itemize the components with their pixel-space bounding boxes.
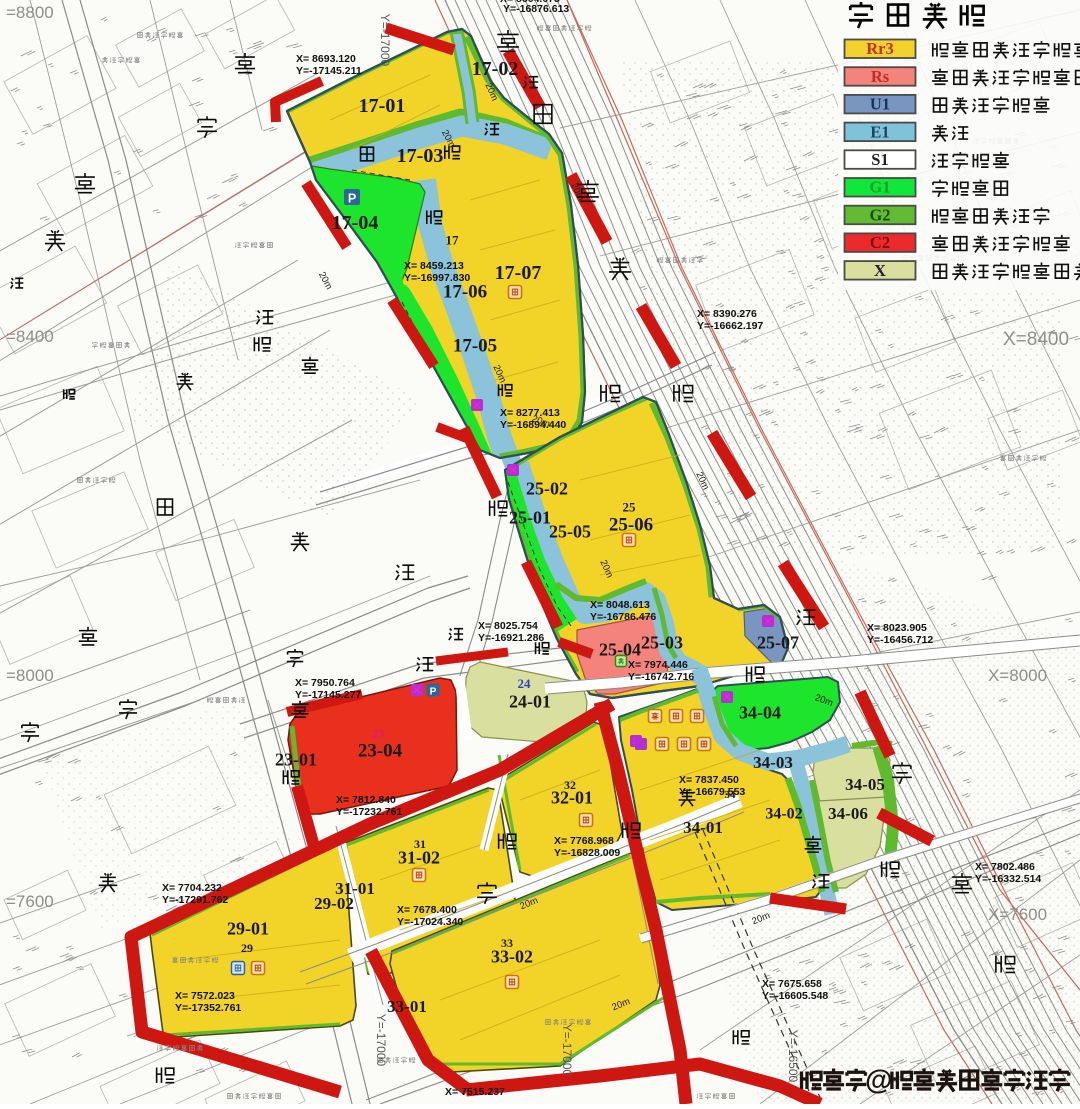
svg-text:X= 7515.237: X= 7515.237 xyxy=(445,1086,505,1098)
svg-text:Y=-17232.761: Y=-17232.761 xyxy=(336,806,402,818)
svg-text:Y=-17145.211: Y=-17145.211 xyxy=(296,65,362,77)
svg-text:S1: S1 xyxy=(871,150,888,169)
svg-text:33-01: 33-01 xyxy=(387,997,427,1016)
svg-text:17-06: 17-06 xyxy=(443,282,487,303)
svg-text:X= 7974.446: X= 7974.446 xyxy=(628,659,688,671)
svg-text:X= 7768.968: X= 7768.968 xyxy=(554,835,614,847)
svg-text:X=8400: X=8400 xyxy=(1003,329,1069,350)
svg-text:Y=-16921.286: Y=-16921.286 xyxy=(478,632,544,644)
svg-text:Y=-16332.514: Y=-16332.514 xyxy=(975,873,1041,885)
svg-text:17: 17 xyxy=(446,233,460,248)
svg-text:P: P xyxy=(430,686,437,697)
svg-text:X= 7675.658: X= 7675.658 xyxy=(762,978,822,990)
svg-text:24-01: 24-01 xyxy=(509,691,551,711)
svg-text:Y=-17000: Y=-17000 xyxy=(378,14,392,67)
svg-text:17-07: 17-07 xyxy=(495,262,542,284)
svg-text:Y=-17000: Y=-17000 xyxy=(560,1024,574,1077)
svg-text:=8400: =8400 xyxy=(6,327,54,346)
svg-text:Y=-16500: Y=-16500 xyxy=(786,1030,800,1083)
svg-text:Y=-16456.712: Y=-16456.712 xyxy=(867,634,933,646)
svg-text:29-01: 29-01 xyxy=(227,918,269,938)
svg-text:Y=-16997.830: Y=-16997.830 xyxy=(404,272,470,284)
svg-text:25-02: 25-02 xyxy=(526,478,568,498)
svg-text:G2: G2 xyxy=(869,205,890,224)
svg-text:X= 7837.450: X= 7837.450 xyxy=(679,774,739,786)
svg-text:Y=-16742.716: Y=-16742.716 xyxy=(628,671,694,683)
svg-text:Rs: Rs xyxy=(871,67,890,86)
svg-text:25-01: 25-01 xyxy=(509,507,551,527)
svg-text:25-03: 25-03 xyxy=(641,632,683,652)
svg-text:29: 29 xyxy=(241,941,253,955)
svg-text:X= 7678.400: X= 7678.400 xyxy=(397,904,457,916)
svg-text:17-01: 17-01 xyxy=(359,95,406,117)
svg-text:Y=-17145.277: Y=-17145.277 xyxy=(295,689,361,701)
svg-text:23-01: 23-01 xyxy=(275,749,317,769)
svg-text:32: 32 xyxy=(564,778,576,792)
svg-text:17-02: 17-02 xyxy=(472,58,519,80)
svg-text:23-04: 23-04 xyxy=(358,741,403,762)
svg-text:P: P xyxy=(348,191,356,205)
svg-text:X=7600: X=7600 xyxy=(988,905,1047,924)
svg-text:=8000: =8000 xyxy=(6,666,54,685)
svg-text:X= 8277.413: X= 8277.413 xyxy=(500,407,560,419)
svg-text:X= 8025.754: X= 8025.754 xyxy=(478,620,538,632)
svg-text:24: 24 xyxy=(518,676,532,691)
svg-text:Y=-17024.340: Y=-17024.340 xyxy=(397,916,463,928)
svg-text:25-05: 25-05 xyxy=(549,521,591,541)
svg-text:34-04: 34-04 xyxy=(739,702,781,722)
svg-text:E1: E1 xyxy=(870,122,889,141)
svg-text:Rr3: Rr3 xyxy=(866,39,894,58)
svg-text:X= 7950.764: X= 7950.764 xyxy=(295,677,355,689)
svg-text:Y=-17352.761: Y=-17352.761 xyxy=(175,1002,241,1014)
svg-text:Y=-16828.009: Y=-16828.009 xyxy=(554,847,620,859)
svg-text:X= 7812.840: X= 7812.840 xyxy=(336,794,396,806)
svg-text:C2: C2 xyxy=(870,233,890,252)
svg-text:25-07: 25-07 xyxy=(757,632,799,652)
svg-text:X= 7704.232: X= 7704.232 xyxy=(162,882,222,894)
svg-text:33: 33 xyxy=(501,936,513,950)
svg-text:X= 7802.486: X= 7802.486 xyxy=(975,861,1035,873)
svg-text:X= 8023.905: X= 8023.905 xyxy=(867,622,927,634)
svg-text:34-03: 34-03 xyxy=(753,753,793,772)
svg-text:23: 23 xyxy=(372,726,386,741)
svg-text:X= 8048.613: X= 8048.613 xyxy=(590,599,650,611)
svg-text:34-02: 34-02 xyxy=(765,806,802,823)
svg-text:=8800: =8800 xyxy=(6,3,54,22)
svg-text:25: 25 xyxy=(623,500,637,515)
svg-text:25-04: 25-04 xyxy=(599,639,641,659)
svg-text:X= 7572.023: X= 7572.023 xyxy=(175,990,235,1002)
svg-text:X= 8459.213: X= 8459.213 xyxy=(404,260,464,272)
svg-text:=7600: =7600 xyxy=(6,892,54,911)
svg-text:X= 8390.276: X= 8390.276 xyxy=(697,308,757,320)
svg-text:X: X xyxy=(874,261,886,280)
svg-text:17-05: 17-05 xyxy=(453,336,497,357)
svg-text:U1: U1 xyxy=(870,95,890,114)
svg-text:25-06: 25-06 xyxy=(609,515,653,536)
svg-text:Y=-17291.762: Y=-17291.762 xyxy=(162,894,228,906)
svg-text:@: @ xyxy=(865,1064,892,1095)
svg-text:17-03: 17-03 xyxy=(397,145,444,167)
svg-text:17-04: 17-04 xyxy=(332,212,379,234)
svg-text:X= 8693.120: X= 8693.120 xyxy=(296,53,356,65)
svg-text:34-01: 34-01 xyxy=(683,818,723,837)
svg-text:34-06: 34-06 xyxy=(828,804,868,823)
svg-text:X= 8604.073: X= 8604.073 xyxy=(500,0,560,5)
svg-text:31-01: 31-01 xyxy=(335,879,375,898)
svg-text:31: 31 xyxy=(414,837,426,851)
svg-text:Y=-16786.476: Y=-16786.476 xyxy=(590,611,656,623)
svg-text:X=8000: X=8000 xyxy=(988,666,1047,685)
svg-text:G1: G1 xyxy=(869,178,890,197)
svg-text:Y=-16662.197: Y=-16662.197 xyxy=(697,320,763,332)
svg-text:Y=-16605.548: Y=-16605.548 xyxy=(762,990,828,1002)
svg-text:34-05: 34-05 xyxy=(845,775,885,794)
